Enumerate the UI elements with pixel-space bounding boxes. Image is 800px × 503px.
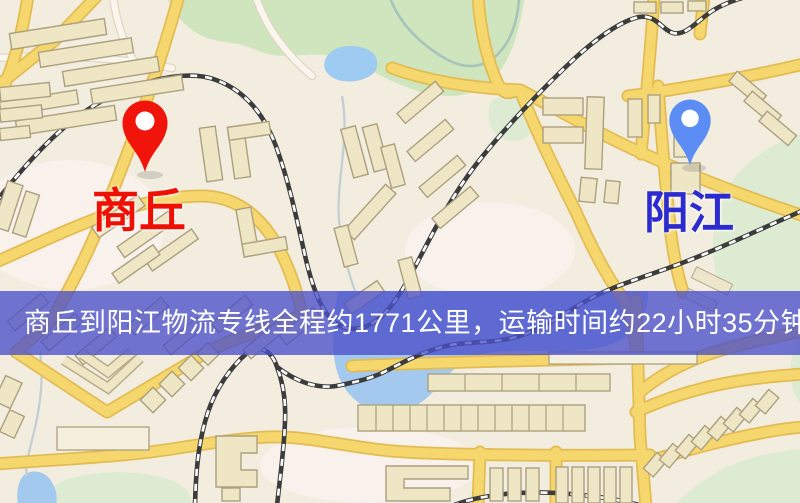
route-info-text: 商丘到阳江物流专线全程约1771公里，运输时间约22小时35分钟.: [0, 291, 800, 355]
destination-city-label: 阳江: [644, 176, 734, 241]
map-canvas: [0, 0, 800, 503]
origin-city-label: 商丘: [92, 172, 186, 241]
map-screenshot: 商丘到阳江物流专线全程约1771公里，运输时间约22小时35分钟. 商丘 阳江: [0, 0, 800, 503]
route-info-banner: 商丘到阳江物流专线全程约1771公里，运输时间约22小时35分钟.: [0, 291, 800, 355]
